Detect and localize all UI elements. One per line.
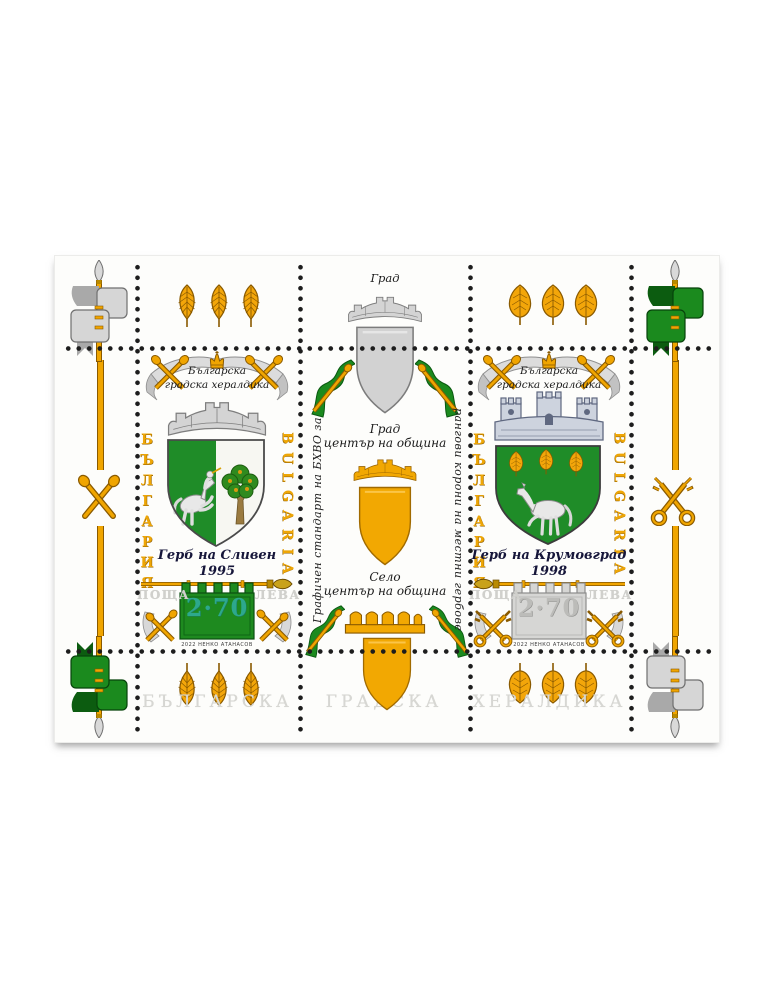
ribbon-text-line2: градска хералдика <box>145 378 289 392</box>
perforation-line-horizontal-1 <box>63 346 713 351</box>
crossed-maces-icon <box>73 470 125 526</box>
perforation-line-vertical-4 <box>629 262 634 736</box>
post-label: ПОЩА <box>137 588 179 602</box>
stamp-krumovgrad: Българска градска хералдика БЪЛГАРИЯ BUL… <box>467 348 631 651</box>
village-label: Село център на община <box>310 570 460 598</box>
ribbon-text-line1: Българска <box>477 364 621 378</box>
bottom-title-word-1: БЪЛГАРСКА <box>135 692 300 712</box>
ribbon-text-line1: Българска <box>145 364 289 378</box>
center-right-vertical-text: рангови корони на местни гербове <box>449 394 465 646</box>
post-label: ПОЩА <box>469 588 511 602</box>
stamp-value: 2·70 <box>179 594 255 622</box>
perforation-line-horizontal-2 <box>63 649 713 654</box>
stamp-sliven: Българска градска хералдика БЪЛГАРИЯ BUL… <box>135 348 300 651</box>
left-staff-upper <box>97 360 104 470</box>
crossed-keys-icon <box>647 470 699 526</box>
perforation-line-vertical-3 <box>468 262 473 736</box>
right-staff-lower <box>672 526 679 636</box>
krumovgrad-coat-of-arms <box>494 444 602 546</box>
gold-shield-bottom-icon <box>358 636 416 712</box>
stamp-value: 2·70 <box>511 594 587 622</box>
silver-shield-icon <box>354 324 416 416</box>
silver-mural-crown-icon <box>345 293 425 323</box>
currency-label: ЛЕВА <box>587 588 629 602</box>
bottom-title-word-3: ХЕРАЛДИКА <box>468 692 631 712</box>
city-label-line2: център на община <box>310 436 460 450</box>
center-left-vertical-text: Графичен стандарт на БХВО за <box>311 394 327 646</box>
designer-credit: 2022 НЕНКО АТАНАСОВ <box>487 642 611 648</box>
city-label: Град център на община <box>310 422 460 450</box>
stamp-caption: Герб на Крумовград <box>471 548 627 563</box>
beech-leaves-icon <box>171 282 267 332</box>
center-top-label: Град <box>340 271 430 285</box>
gold-shield-icon <box>357 484 413 568</box>
stamp-caption: Герб на Сливен <box>139 548 295 563</box>
stamp-sheet: БЪЛГАРСКА ГРАДСКА ХЕРАЛДИКА Град Град це… <box>54 255 720 743</box>
castle-crown-icon <box>485 390 613 442</box>
designer-credit: 2022 НЕНКО АТАНАСОВ <box>155 642 279 648</box>
gold-mural-crown-icon <box>351 456 419 482</box>
perforation-line-vertical-1 <box>135 262 140 736</box>
sliven-coat-of-arms <box>166 438 266 548</box>
currency-label: ЛЕВА <box>255 588 297 602</box>
page-background: БЪЛГАРСКА ГРАДСКА ХЕРАЛДИКА Град Град це… <box>0 0 771 1000</box>
left-staff-lower <box>97 526 104 636</box>
village-label-line1: Село <box>310 570 460 584</box>
city-label-line1: Град <box>310 422 460 436</box>
village-label-line2: център на община <box>310 584 460 598</box>
right-staff-upper <box>672 360 679 470</box>
perforation-line-vertical-2 <box>298 262 303 736</box>
gold-village-crown-icon <box>342 602 428 634</box>
mural-crown-icon <box>161 398 273 436</box>
linden-leaves-icon <box>505 282 601 332</box>
